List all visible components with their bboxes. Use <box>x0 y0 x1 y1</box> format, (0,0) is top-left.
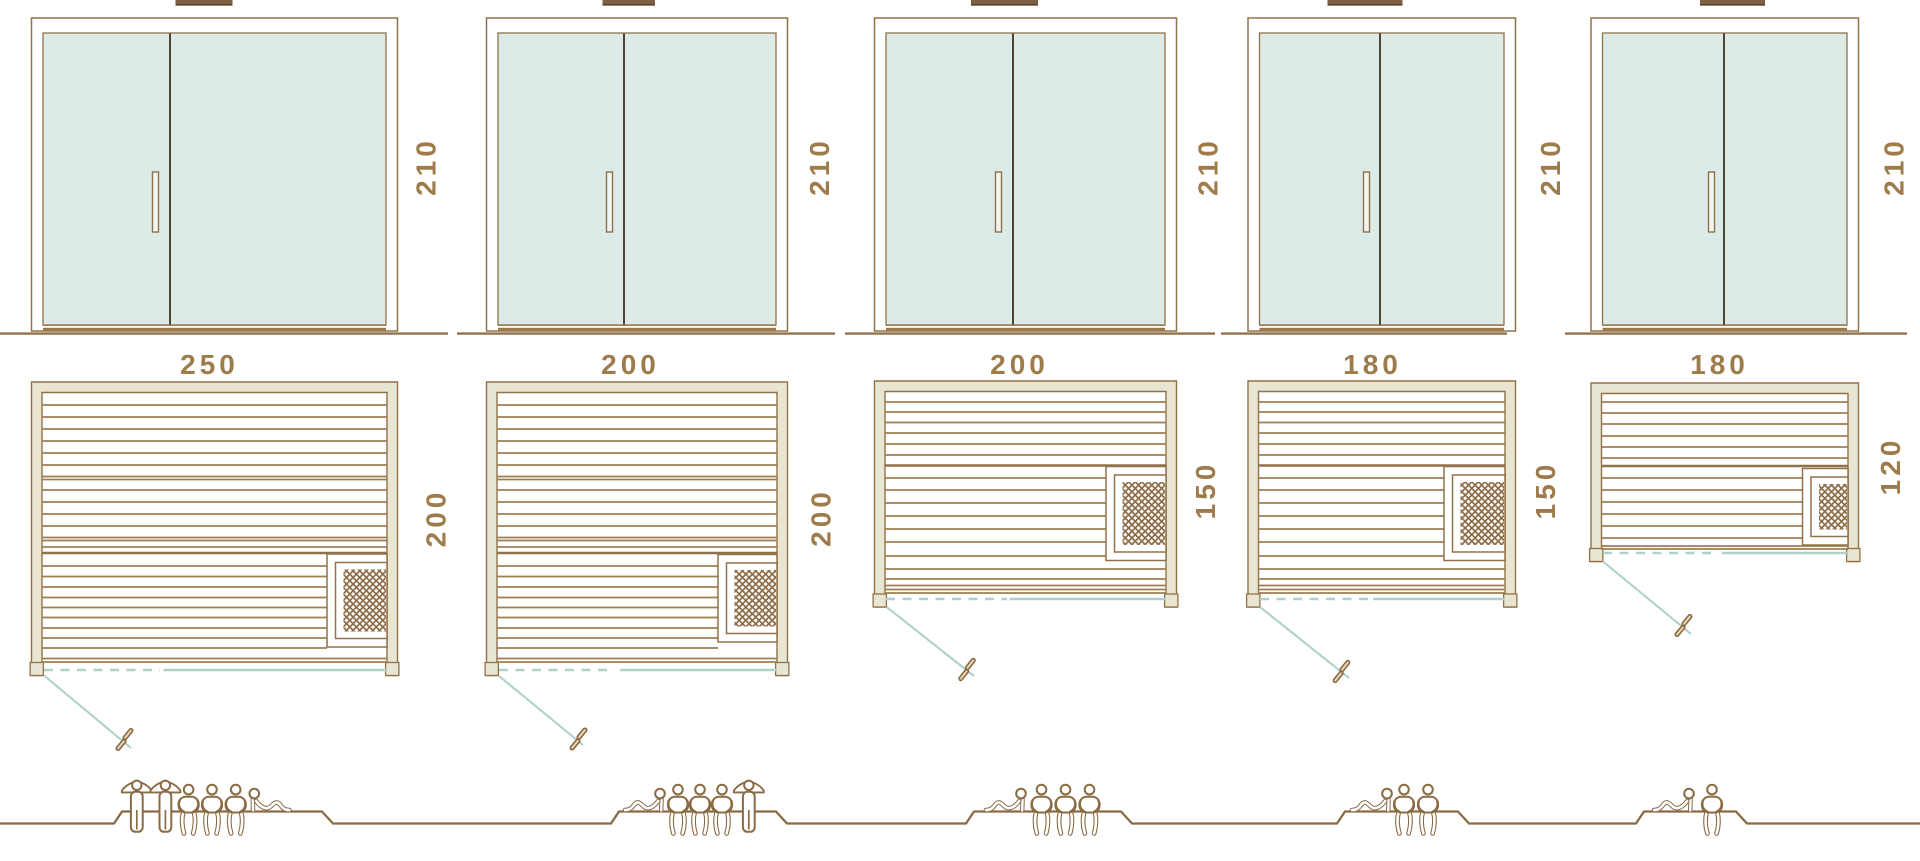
svg-text:210: 210 <box>411 137 442 196</box>
svg-text:250: 250 <box>180 349 239 380</box>
svg-text:150: 150 <box>1190 461 1221 520</box>
svg-text:120: 120 <box>1875 437 1906 496</box>
svg-text:200: 200 <box>421 489 452 548</box>
svg-text:200: 200 <box>990 349 1049 380</box>
svg-text:210: 210 <box>1879 137 1910 196</box>
svg-text:180: 180 <box>1690 349 1749 380</box>
svg-text:200: 200 <box>601 349 660 380</box>
svg-text:200: 200 <box>806 488 837 547</box>
svg-text:210: 210 <box>804 137 835 196</box>
svg-text:210: 210 <box>1535 137 1566 196</box>
svg-text:210: 210 <box>1193 137 1224 196</box>
svg-text:150: 150 <box>1530 461 1561 520</box>
svg-text:180: 180 <box>1343 349 1402 380</box>
